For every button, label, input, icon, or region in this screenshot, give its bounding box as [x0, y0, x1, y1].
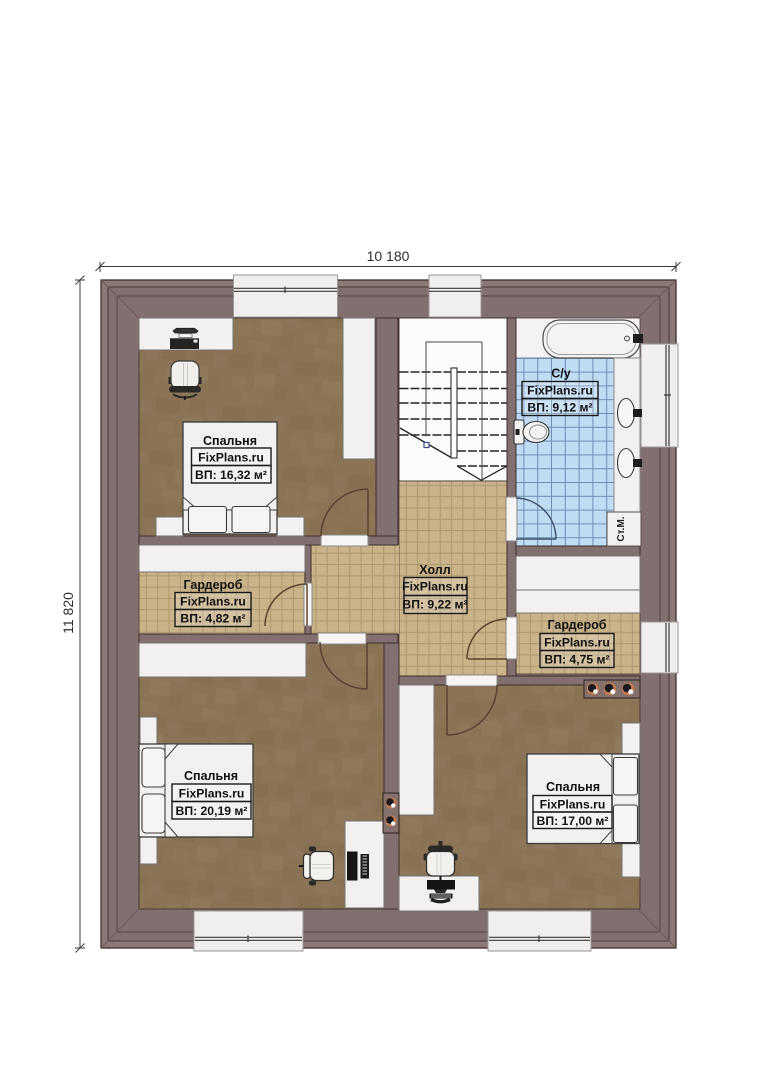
svg-text:FixPlans.ru: FixPlans.ru	[402, 580, 468, 594]
svg-text:FixPlans.ru: FixPlans.ru	[180, 595, 246, 609]
svg-text:FixPlans.ru: FixPlans.ru	[527, 384, 593, 398]
svg-text:Спальня: Спальня	[546, 780, 600, 794]
svg-text:Ст.М.: Ст.М.	[616, 516, 627, 541]
svg-text:Гардероб: Гардероб	[547, 618, 606, 632]
svg-text:Холл: Холл	[419, 563, 450, 577]
svg-text:11 820: 11 820	[60, 592, 76, 634]
svg-text:С/у: С/у	[551, 367, 571, 381]
svg-text:FixPlans.ru: FixPlans.ru	[179, 787, 245, 801]
svg-text:ВП: 4,82 м²: ВП: 4,82 м²	[180, 612, 245, 626]
svg-text:FixPlans.ru: FixPlans.ru	[198, 451, 264, 465]
svg-text:ВП: 4,75 м²: ВП: 4,75 м²	[544, 653, 609, 667]
svg-text:ВП: 20,19 м²: ВП: 20,19 м²	[176, 804, 248, 818]
svg-text:ВП: 16,32 м²: ВП: 16,32 м²	[195, 468, 267, 482]
svg-text:FixPlans.ru: FixPlans.ru	[544, 636, 610, 650]
svg-text:ВП: 9,22 м²: ВП: 9,22 м²	[402, 598, 467, 612]
svg-text:Гардероб: Гардероб	[183, 578, 242, 592]
svg-text:ВП: 9,12 м²: ВП: 9,12 м²	[527, 401, 592, 415]
svg-text:10 180: 10 180	[367, 248, 410, 264]
svg-text:Спальня: Спальня	[184, 769, 238, 783]
svg-text:FixPlans.ru: FixPlans.ru	[540, 798, 606, 812]
svg-text:Спальня: Спальня	[203, 434, 257, 448]
svg-text:ВП: 17,00 м²: ВП: 17,00 м²	[537, 814, 609, 828]
